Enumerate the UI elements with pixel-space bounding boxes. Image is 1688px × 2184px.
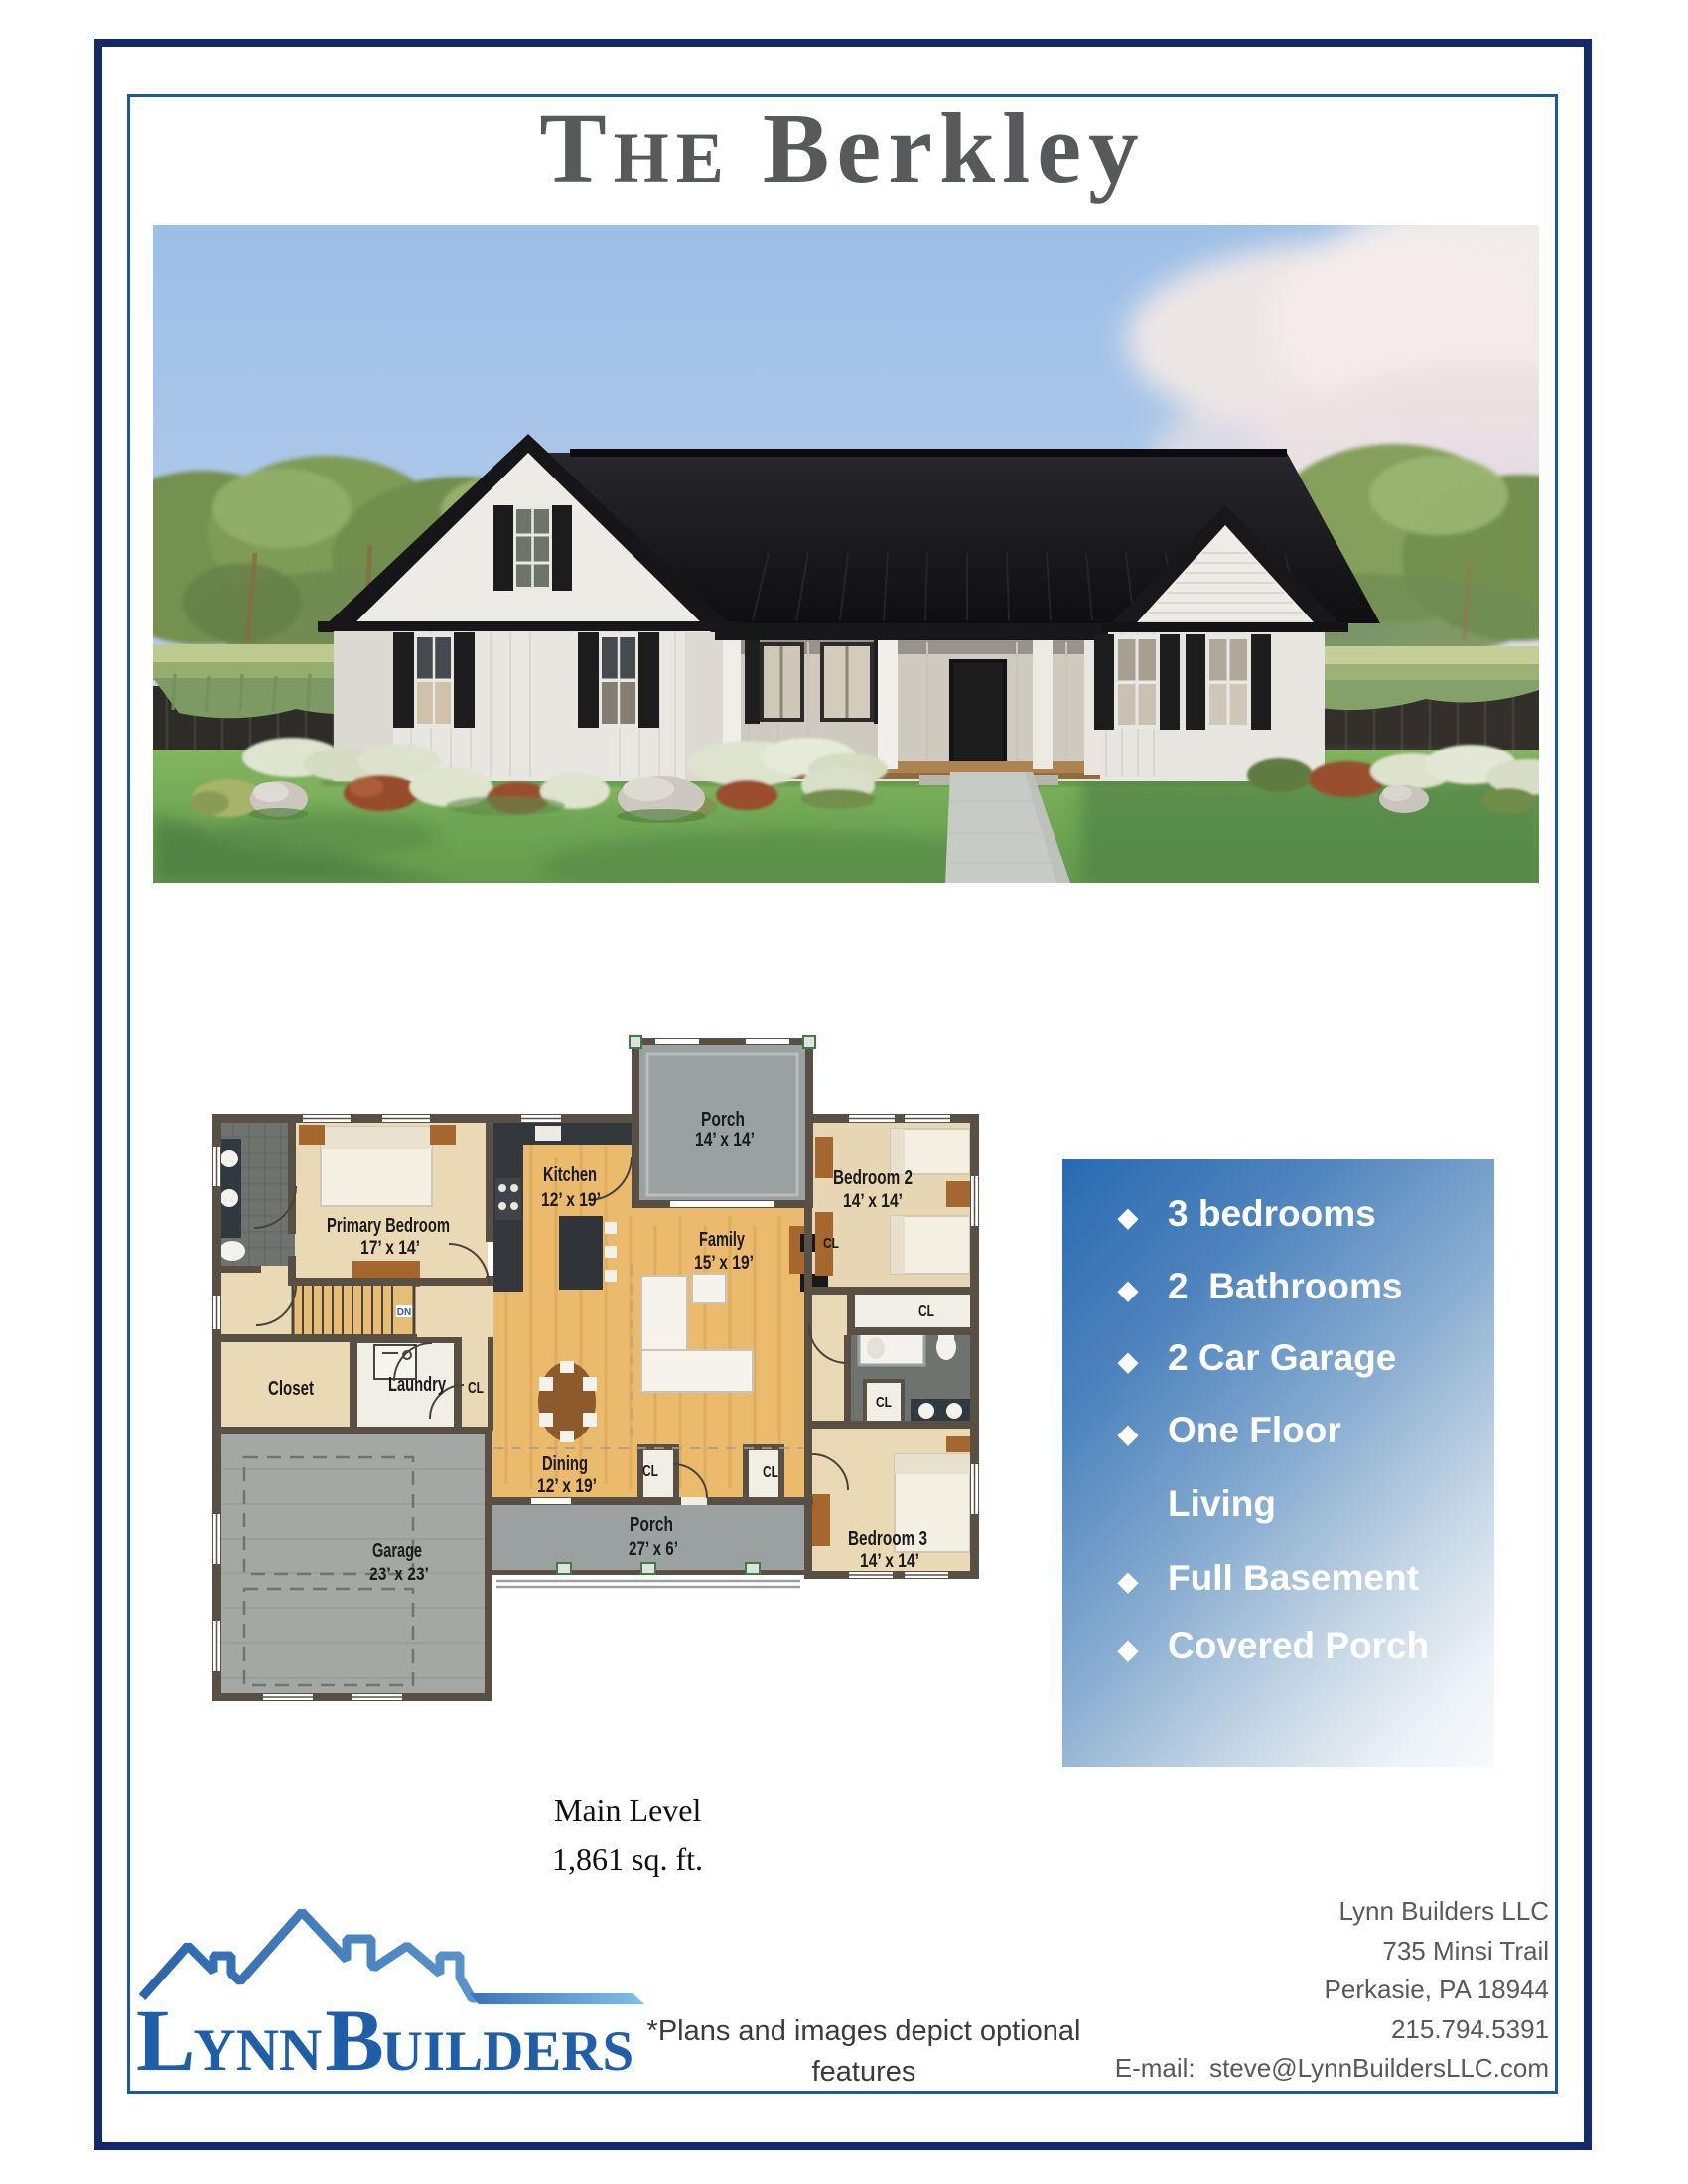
svg-text:23’ x 23’: 23’ x 23’ (369, 1565, 429, 1585)
svg-text:Porch: Porch (630, 1514, 673, 1536)
svg-text:14’ x 14’: 14’ x 14’ (860, 1551, 919, 1571)
svg-text:CL: CL (876, 1394, 892, 1411)
svg-text:14’ x 14’: 14’ x 14’ (695, 1130, 755, 1151)
svg-text:Garage: Garage (372, 1540, 422, 1562)
svg-text:LYNNBUILDERS: LYNNBUILDERS (136, 1992, 633, 2090)
svg-text:DN: DN (397, 1307, 411, 1318)
svg-text:CL: CL (763, 1464, 778, 1481)
svg-text:15’ x 19’: 15’ x 19’ (694, 1253, 754, 1274)
svg-text:Kitchen: Kitchen (543, 1164, 597, 1186)
svg-text:CL: CL (823, 1235, 839, 1252)
svg-text:Family: Family (699, 1229, 746, 1251)
svg-text:Bedroom 3: Bedroom 3 (848, 1528, 927, 1550)
svg-text:Laundry: Laundry (388, 1374, 447, 1396)
svg-text:Porch: Porch (701, 1109, 745, 1131)
svg-text:CL: CL (468, 1380, 484, 1397)
svg-text:27’ x 6’: 27’ x 6’ (629, 1539, 678, 1560)
svg-text:14’ x 14’: 14’ x 14’ (843, 1191, 903, 1212)
svg-text:17’ x 14’: 17’ x 14’ (360, 1238, 420, 1259)
svg-text:12’ x 19’: 12’ x 19’ (541, 1190, 601, 1211)
svg-text:Dining: Dining (542, 1453, 588, 1475)
svg-text:12’ x 19’: 12’ x 19’ (537, 1476, 597, 1497)
svg-text:Primary Bedroom: Primary Bedroom (327, 1215, 450, 1237)
svg-text:CL: CL (918, 1303, 934, 1320)
svg-text:Closet: Closet (268, 1378, 314, 1400)
svg-text:Bedroom 2: Bedroom 2 (833, 1167, 913, 1189)
svg-text:CL: CL (642, 1463, 658, 1480)
